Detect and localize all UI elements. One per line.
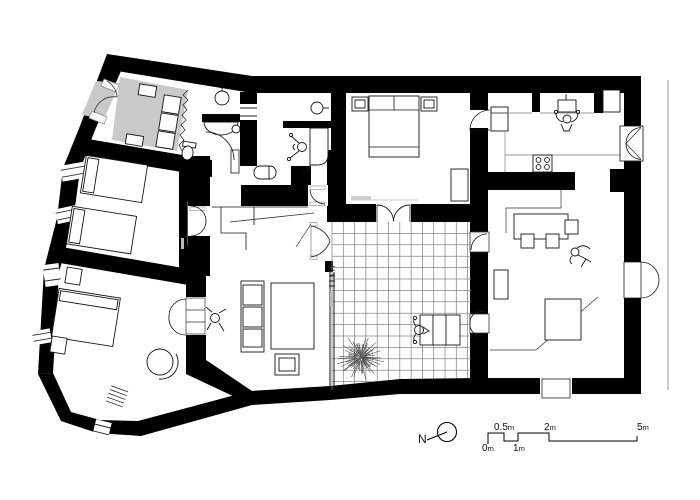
svg-text:2m: 2m <box>544 422 556 433</box>
svg-text:0m: 0m <box>482 443 494 454</box>
svg-text:N: N <box>418 432 427 446</box>
svg-text:0.5m: 0.5m <box>494 422 514 433</box>
svg-text:1m: 1m <box>513 443 525 454</box>
svg-text:5m: 5m <box>637 422 649 433</box>
